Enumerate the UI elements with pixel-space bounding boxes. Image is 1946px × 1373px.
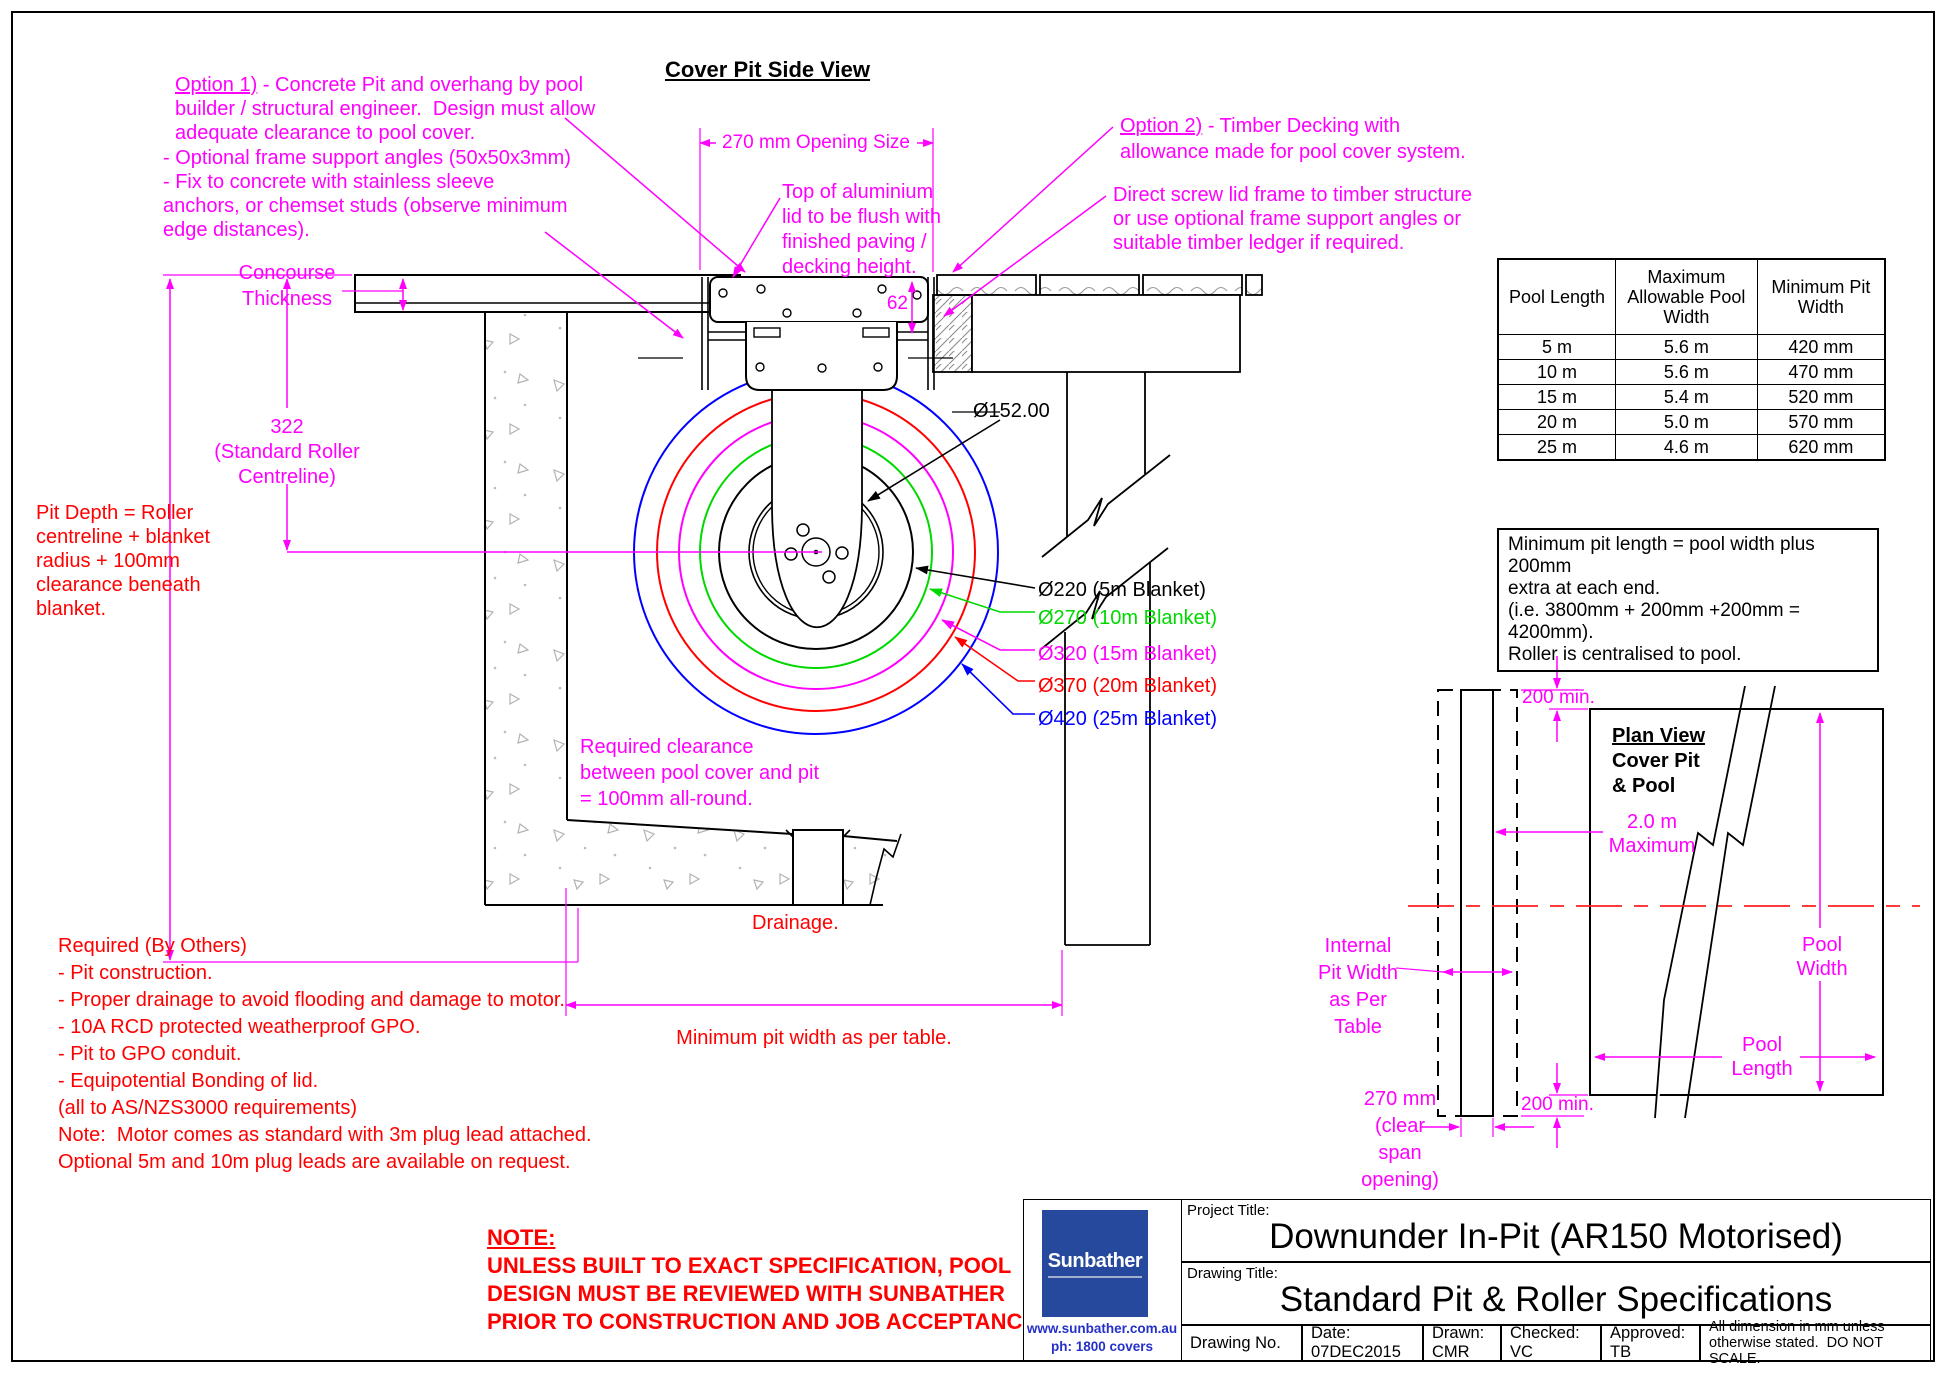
date-cell: Date: 07DEC2015 bbox=[1302, 1325, 1423, 1361]
frame-angles-note: - Optional frame support angles (50x50x3… bbox=[163, 146, 571, 242]
plan-pool-width: Pool Width bbox=[1772, 933, 1872, 981]
col-max-pool-width: Maximum Allowable Pool Width bbox=[1615, 259, 1757, 335]
table-row: 5 m5.6 m420 mm bbox=[1498, 335, 1885, 360]
project-title-cell: Project Title: Downunder In-Pit (AR150 M… bbox=[1181, 1199, 1931, 1262]
col-pool-length: Pool Length bbox=[1498, 259, 1615, 335]
blanket-label-5m: Ø220 (5m Blanket) bbox=[1038, 578, 1206, 602]
approved-cell: Approved: TB bbox=[1601, 1325, 1700, 1361]
option2-note: Option 2) - Timber Decking with allowanc… bbox=[1120, 113, 1466, 165]
blanket-label-20m: Ø370 (20m Blanket) bbox=[1038, 674, 1217, 698]
dimension-note-cell: All dimension in mm unless otherwise sta… bbox=[1700, 1325, 1931, 1361]
dim-62: 62 bbox=[872, 292, 908, 316]
drainage-label: Drainage. bbox=[752, 911, 839, 935]
table-row: 15 m5.4 m520 mm bbox=[1498, 385, 1885, 410]
roller-diameter-label: Ø152.00 bbox=[973, 399, 1050, 423]
logo-url: www.sunbather.com.au bbox=[1023, 1321, 1181, 1336]
plan-pool-length: Pool Length bbox=[1712, 1033, 1812, 1081]
pit-length-note: Minimum pit length = pool width plus 200… bbox=[1497, 528, 1879, 672]
drawing-title: Standard Pit & Roller Specifications bbox=[1182, 1263, 1930, 1324]
plan-clear-span: 270 mm (clear span opening) bbox=[1340, 1086, 1460, 1194]
motor-lead-note: Note: Motor comes as standard with 3m pl… bbox=[58, 1122, 592, 1176]
drawing-sheet: Cover Pit Side View Option 1) - Concrete… bbox=[0, 0, 1946, 1373]
project-title: Downunder In-Pit (AR150 Motorised) bbox=[1182, 1200, 1930, 1261]
clearance-note: Required clearance between pool cover an… bbox=[580, 734, 819, 812]
pit-depth-note: Pit Depth = Roller centreline + blanket … bbox=[36, 501, 210, 621]
label-leaders bbox=[868, 412, 1035, 714]
col-min-pit-width: Minimum Pit Width bbox=[1757, 259, 1885, 335]
blanket-label-25m: Ø420 (25m Blanket) bbox=[1038, 707, 1217, 731]
required-by-others: Required (By Others) - Pit construction.… bbox=[58, 933, 565, 1122]
table-row: 25 m4.6 m620 mm bbox=[1498, 435, 1885, 461]
blanket-label-10m: Ø270 (10m Blanket) bbox=[1038, 606, 1217, 630]
drawn-cell: Drawn: CMR bbox=[1423, 1325, 1501, 1361]
side-view-title: Cover Pit Side View bbox=[665, 58, 965, 82]
min-pit-width-label: Minimum pit width as per table. bbox=[614, 1026, 1014, 1050]
roller-centreline-dim: 322 (Standard Roller Centreline) bbox=[187, 415, 387, 490]
direct-screw-note: Direct screw lid frame to timber structu… bbox=[1113, 183, 1472, 255]
table-row: 10 m5.6 m470 mm bbox=[1498, 360, 1885, 385]
plan-200min-top: 200 min. bbox=[1522, 686, 1595, 710]
pool-spec-table: Pool Length Maximum Allowable Pool Width… bbox=[1497, 258, 1886, 461]
side-view-timber-deck bbox=[933, 275, 1262, 372]
plan-2m-max: 2.0 m Maximum bbox=[1592, 810, 1712, 858]
plan-200min-bottom: 200 min. bbox=[1521, 1093, 1594, 1117]
drawing-no-cell: Drawing No. bbox=[1181, 1325, 1302, 1361]
option1-note: Option 1) - Concrete Pit and overhang by… bbox=[175, 73, 595, 145]
checked-cell: Checked: VC bbox=[1501, 1325, 1601, 1361]
table-row: 20 m5.0 m570 mm bbox=[1498, 410, 1885, 435]
blanket-label-15m: Ø320 (15m Blanket) bbox=[1038, 642, 1217, 666]
concourse-label: Concourse Thickness bbox=[212, 260, 362, 312]
opening-size-dim: 270 mm Opening Size bbox=[710, 131, 922, 155]
spec-warning-note: NOTE:UNLESS BUILT TO EXACT SPECIFICATION… bbox=[487, 1224, 1037, 1336]
plan-internal-pit-width: Internal Pit Width as Per Table bbox=[1298, 933, 1418, 1041]
lid-flush-note: Top of aluminium lid to be flush with fi… bbox=[782, 180, 941, 280]
plan-view-title: Plan ViewCover Pit & Pool bbox=[1612, 724, 1705, 799]
sunbather-logo: Sunbather bbox=[1042, 1210, 1148, 1317]
logo-phone: ph: 1800 covers bbox=[1023, 1339, 1181, 1354]
drawing-title-cell: Drawing Title: Standard Pit & Roller Spe… bbox=[1181, 1262, 1931, 1325]
